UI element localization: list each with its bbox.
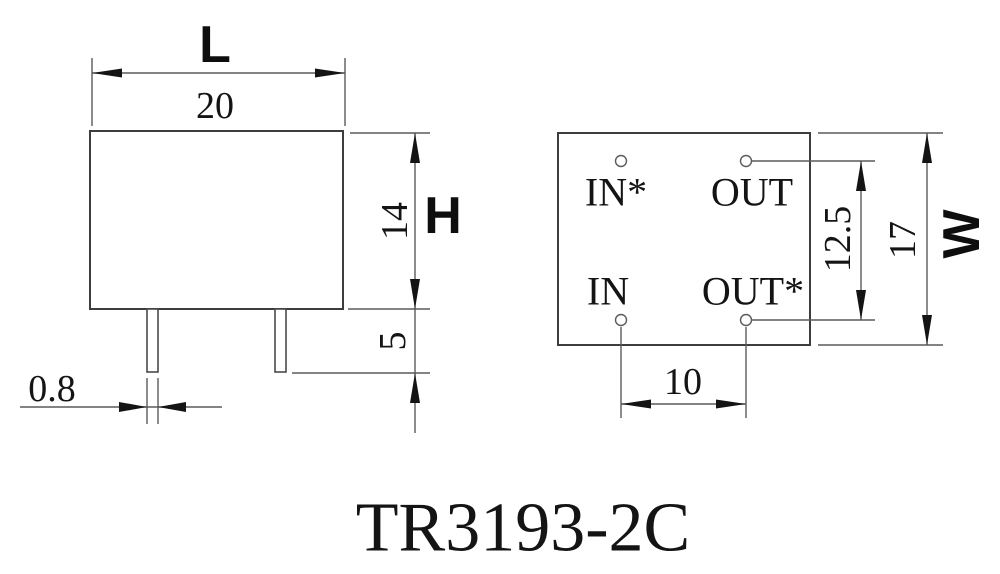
pin-col-spacing-value-label: 10 [664, 361, 702, 403]
component-body-outline [90, 131, 343, 309]
height-symbol-label: H [424, 187, 462, 245]
pin-length-dimension: 5 [292, 309, 430, 433]
pin-row-spacing-value-label: 12.5 [817, 206, 859, 273]
arrow-down-icon [856, 290, 866, 320]
top-view: IN* OUT IN OUT* 12.5 17 W [558, 133, 991, 418]
length-value-label: 20 [196, 85, 234, 127]
arrow-right-icon [119, 402, 147, 412]
side-view: L 20 14 H 5 [20, 16, 462, 433]
arrow-up-icon [922, 133, 932, 163]
pin-label-in: IN [587, 269, 629, 314]
arrow-down-icon [410, 279, 420, 309]
arrow-down-icon [922, 315, 932, 345]
pin-width-dimension: 0.8 [20, 368, 222, 424]
pin-label-in-star: IN* [585, 170, 647, 215]
overall-width-value-label: 17 [882, 221, 924, 259]
width-symbol-label: W [933, 209, 991, 259]
arrow-up-icon [410, 373, 420, 403]
pin-width-value-label: 0.8 [28, 368, 76, 410]
body-height-value-label: 14 [374, 202, 416, 240]
arrow-up-icon [410, 133, 420, 163]
length-symbol-label: L [199, 16, 231, 74]
technical-drawing: L 20 14 H 5 [0, 0, 1000, 574]
arrow-left-icon [621, 400, 651, 409]
pin-right [275, 309, 286, 372]
pin-left [147, 309, 158, 372]
length-dimension: L 20 [92, 16, 345, 127]
arrow-right-icon [315, 69, 345, 78]
arrow-up-icon [856, 161, 866, 191]
pin-label-out-star: OUT* [702, 269, 804, 314]
part-number-title: TR3193-2C [356, 490, 690, 567]
pin-length-value-label: 5 [372, 332, 414, 351]
arrow-right-icon [716, 400, 746, 409]
arrow-left-icon [158, 402, 186, 412]
pin-label-out: OUT [711, 170, 793, 215]
arrow-left-icon [92, 69, 122, 78]
body-height-dimension: 14 H [348, 133, 462, 309]
